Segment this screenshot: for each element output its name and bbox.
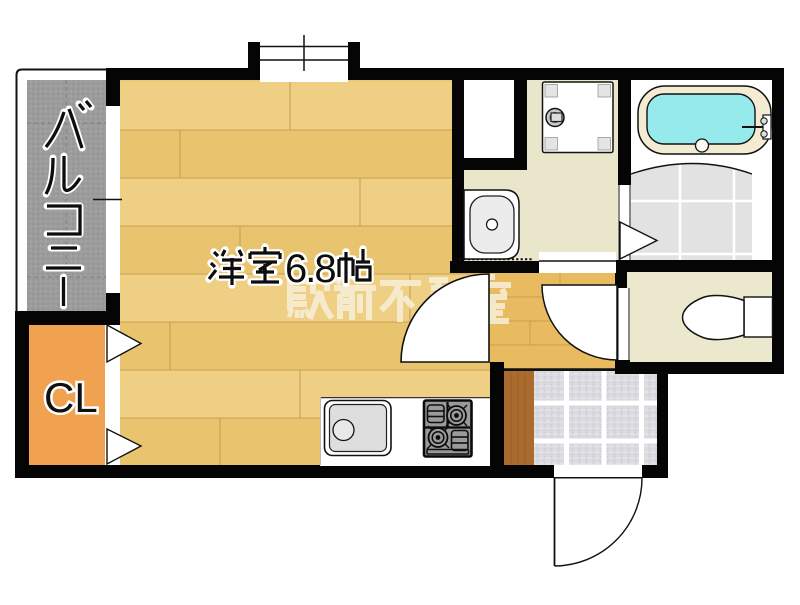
svg-text:CL: CL: [44, 374, 98, 421]
svg-text:6.8: 6.8: [285, 247, 335, 291]
